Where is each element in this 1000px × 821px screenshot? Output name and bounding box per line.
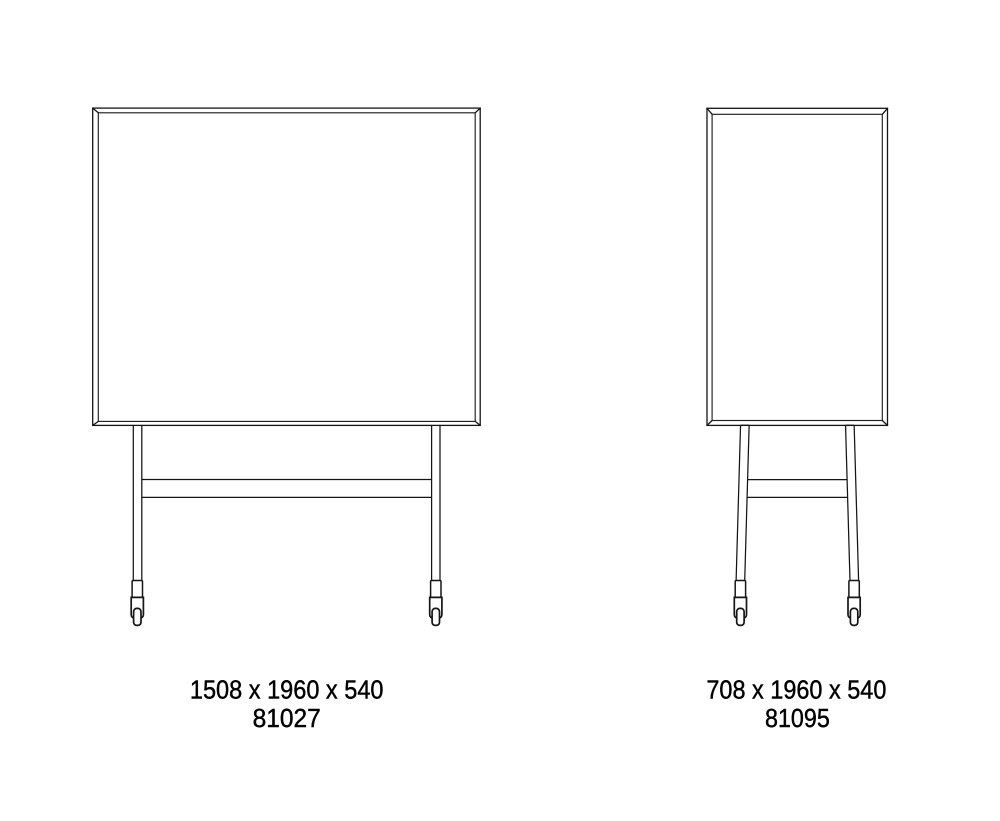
svg-text:81095: 81095 (765, 705, 830, 733)
svg-text:708 x 1960 x 540: 708 x 1960 x 540 (706, 677, 886, 705)
svg-text:1508 x 1960 x 540: 1508 x 1960 x 540 (190, 677, 384, 705)
svg-text:81027: 81027 (253, 705, 321, 733)
